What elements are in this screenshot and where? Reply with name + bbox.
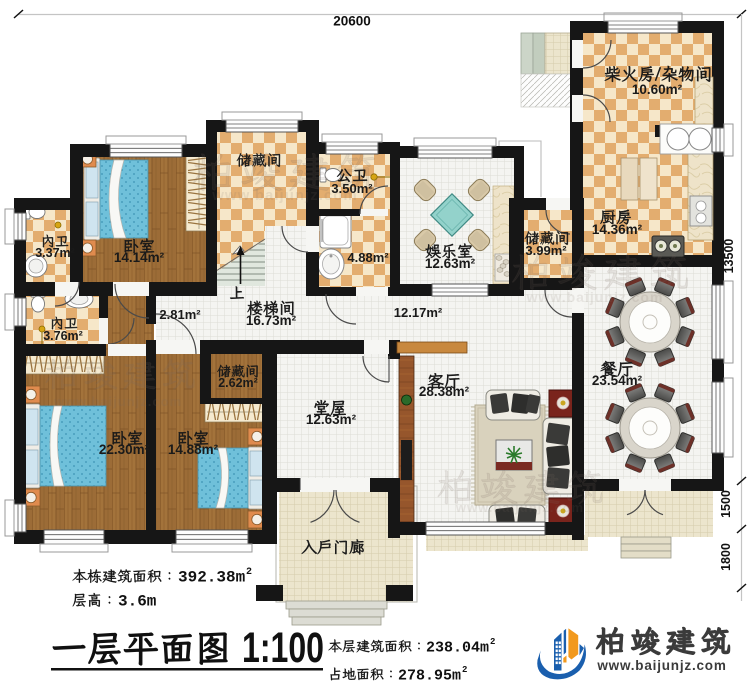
svg-text:2: 2 <box>246 567 252 578</box>
svg-text:20600: 20600 <box>333 14 371 29</box>
svg-text:12.63m²: 12.63m² <box>306 412 357 427</box>
svg-text:1:100: 1:100 <box>242 624 324 672</box>
svg-text:12.63m²: 12.63m² <box>425 256 476 271</box>
svg-text:392.38m: 392.38m <box>178 569 246 587</box>
svg-text:4.88m²: 4.88m² <box>347 250 389 265</box>
svg-text:3.37m²: 3.37m² <box>35 246 75 260</box>
svg-text:1800: 1800 <box>719 543 733 571</box>
svg-text:14.88m²: 14.88m² <box>168 442 219 457</box>
svg-text:10.60m²: 10.60m² <box>632 82 683 97</box>
svg-text:23.54m²: 23.54m² <box>592 373 643 388</box>
svg-text:22.30m²: 22.30m² <box>99 442 150 457</box>
svg-text:2.62m²: 2.62m² <box>218 376 258 390</box>
svg-text:3.99m²: 3.99m² <box>525 243 567 258</box>
svg-text:2: 2 <box>462 665 467 675</box>
svg-text:www.baijunjz.com: www.baijunjz.com <box>596 658 726 673</box>
svg-text:28.38m²: 28.38m² <box>419 384 470 399</box>
svg-text:3.76m²: 3.76m² <box>43 329 83 343</box>
svg-text:www.baijunjz.com: www.baijunjz.com <box>53 394 182 409</box>
svg-text:3.50m²: 3.50m² <box>331 181 373 196</box>
svg-text:12.17m²: 12.17m² <box>394 305 443 320</box>
svg-text:www.baijunjz.com: www.baijunjz.com <box>455 500 584 515</box>
svg-text:14.14m²: 14.14m² <box>114 250 165 265</box>
svg-text:16.73m²: 16.73m² <box>246 313 297 328</box>
svg-text:www.baijunjz.com: www.baijunjz.com <box>526 289 664 305</box>
svg-text:2: 2 <box>490 637 495 647</box>
svg-text:278.95m: 278.95m <box>398 668 461 685</box>
svg-text:13500: 13500 <box>722 239 736 274</box>
svg-text:14.36m²: 14.36m² <box>592 222 643 237</box>
svg-text:3.6m: 3.6m <box>118 593 157 611</box>
svg-text:2.81m²: 2.81m² <box>159 307 201 322</box>
svg-text:1500: 1500 <box>719 490 733 518</box>
svg-text:238.04m: 238.04m <box>426 640 489 657</box>
